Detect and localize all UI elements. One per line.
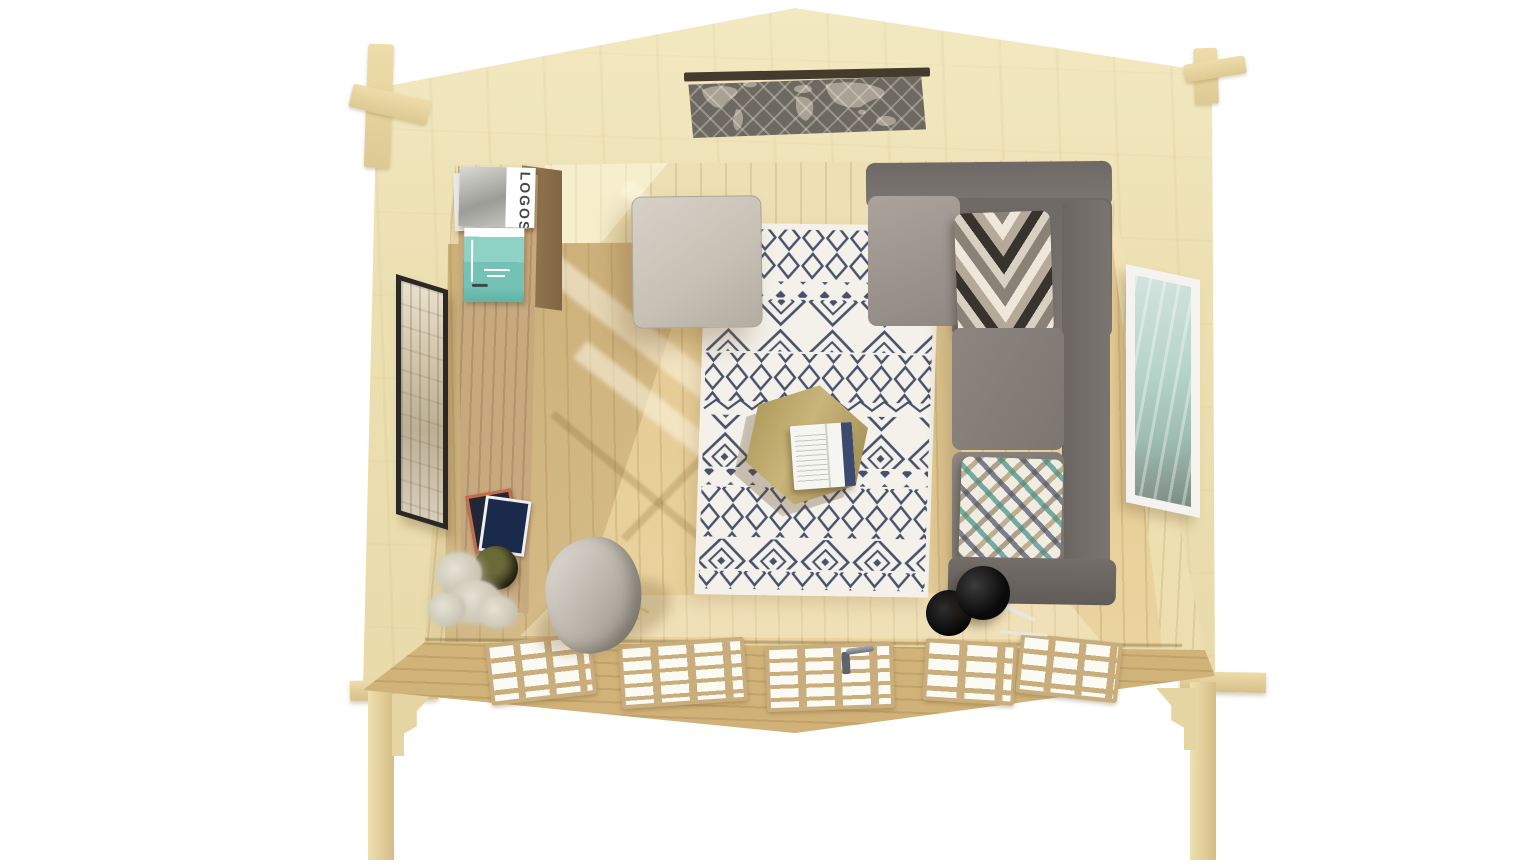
dried-flowers [478, 596, 518, 628]
lamp-shade [956, 566, 1010, 620]
light-lattice-overlay [686, 76, 926, 138]
chevron-stripes [954, 212, 1008, 336]
door-pane-group [765, 642, 895, 712]
post-bracket [392, 694, 432, 756]
window-pane-group [1015, 633, 1123, 703]
magazine-cover: LOGOS [458, 166, 536, 228]
sofa-seat-cushion [952, 328, 1064, 450]
poster-mast-line [471, 240, 473, 282]
sofa-backrest-right [1062, 200, 1110, 568]
poster-boat [472, 284, 488, 287]
ottoman [631, 195, 762, 328]
door-pane-group [618, 637, 748, 710]
magazine-photo [458, 166, 507, 227]
chevron-stripes [1002, 210, 1054, 334]
door-handle [841, 652, 850, 674]
magazine-title: LOGOS [516, 172, 534, 228]
wall-art-right [1126, 264, 1200, 518]
poster-text-line [484, 269, 510, 271]
wall-art-left [396, 274, 448, 530]
front-post [368, 688, 394, 860]
teal-poster [464, 228, 525, 303]
window-pane-group [922, 638, 1018, 706]
sofa-chaise-seat [868, 196, 960, 326]
open-book [790, 422, 856, 490]
scene: LOGOS [0, 0, 1536, 864]
dried-flowers [428, 592, 466, 626]
mosaic-cushion [958, 456, 1063, 561]
post-bracket [1156, 688, 1196, 750]
chevron-cushion [954, 210, 1054, 335]
poster-text-line [487, 275, 505, 277]
